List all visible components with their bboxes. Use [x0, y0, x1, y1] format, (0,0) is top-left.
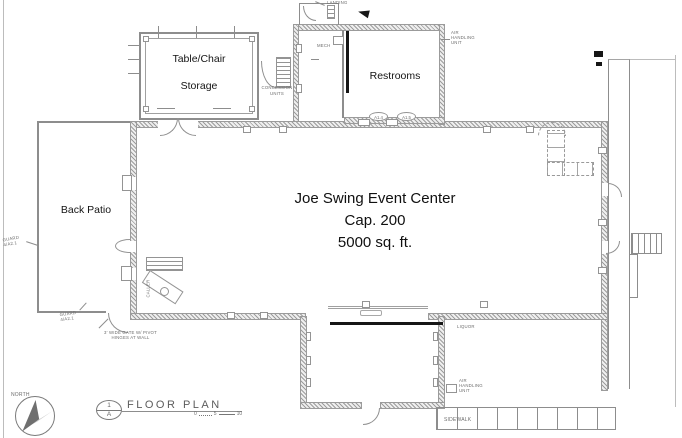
ahu-line3: UNIT	[451, 40, 475, 45]
air-handling-unit-bottom-label: AIR HANDLING UNIT	[459, 378, 483, 393]
storage-label-line1: Table/Chair	[149, 53, 249, 65]
wall-tick	[279, 126, 287, 133]
roof-column-mark	[362, 301, 370, 308]
wall-tick	[526, 126, 534, 133]
restroom-door-sill	[386, 119, 398, 126]
sidewalk-panels: SIDEWALK	[436, 407, 616, 430]
scale-zero: 0	[194, 411, 197, 417]
storage-window-tick	[196, 26, 197, 38]
wall-restroom-north	[293, 24, 445, 31]
sheet-letter: A	[97, 410, 121, 419]
event-center-capacity: Cap. 200	[265, 210, 485, 232]
concession-door-swing	[261, 61, 276, 88]
property-line	[675, 55, 676, 407]
event-center-name: Joe Swing Event Center	[265, 188, 485, 210]
restrooms-label: Restrooms	[350, 70, 440, 82]
roof-column-mark	[480, 301, 488, 308]
wall-tick	[433, 378, 438, 387]
highlighted-wall-horizontal	[330, 322, 443, 325]
gate-note-line2: HINGES AT WALL	[104, 335, 157, 340]
mech-mark	[311, 59, 319, 60]
patio-door-panel-2	[121, 266, 132, 281]
patio-door-panel-1	[122, 175, 132, 191]
storage-window-tick	[128, 73, 141, 74]
wall-entry-south-left	[300, 402, 362, 409]
back-patio-walls	[37, 121, 131, 313]
gate-note: 3' WIDE GATE W/ PIVOT HINGES AT WALL	[104, 330, 157, 340]
ahu-top-leader-line	[441, 39, 450, 40]
guard-line2: 4/A2.1	[60, 315, 77, 322]
wall-hall-south-west	[130, 313, 306, 320]
storage-window-tick	[128, 45, 141, 46]
gate-leader-line	[99, 319, 109, 329]
landing-steps	[327, 5, 335, 19]
wall-tick	[433, 332, 438, 341]
storage-corner-post	[249, 36, 255, 42]
landing-label: LANDING	[327, 0, 348, 5]
wall-tick	[306, 378, 311, 387]
walkway-top-line	[630, 59, 676, 60]
wall-hall-south-east	[428, 313, 608, 320]
wall-hall-west	[130, 121, 137, 319]
restroom-door-sill	[358, 119, 370, 126]
ahu-bottom-unit	[446, 384, 457, 393]
bar-counter-dashed-horizontal	[547, 162, 594, 176]
mech-unit	[333, 36, 344, 45]
exterior-stairs	[631, 233, 662, 254]
storage-corner-post	[249, 106, 255, 112]
wall-highlight-mark	[594, 51, 603, 57]
scale-five: 5	[214, 411, 217, 417]
drawing-title: FLOOR PLAN	[127, 399, 222, 411]
wall-highlight-mark	[596, 62, 602, 66]
wall-tick	[296, 44, 302, 53]
ahu-line3: UNIT	[459, 388, 483, 393]
scale-bar: 0 5 10	[194, 411, 242, 417]
side-walkway	[608, 59, 630, 389]
concession-unit	[276, 57, 291, 88]
highlighted-wall-vertical	[346, 31, 349, 93]
storage-door-swing-right	[178, 118, 196, 136]
bubble-divider	[97, 410, 121, 411]
storage-window-tick	[128, 59, 141, 60]
wall-tick	[433, 356, 438, 365]
concession-label-line2: UNITS	[252, 91, 302, 96]
wall-tick	[227, 312, 235, 319]
sidewalk-label: SIDEWALK	[444, 417, 471, 423]
compass-blade-dark	[20, 400, 50, 433]
storage-window-tick	[234, 26, 235, 38]
wall-entry-east	[438, 316, 445, 408]
storage-inner-wall	[145, 38, 253, 114]
caller-shelf	[146, 257, 183, 271]
north-entry-arrow-icon	[357, 8, 370, 18]
storage-window-tick	[158, 26, 159, 38]
stair-rail	[629, 254, 638, 298]
wall-tick	[483, 126, 491, 133]
caller-label: CALLER	[145, 267, 150, 311]
wall-tick	[598, 219, 607, 226]
wall-tick	[598, 147, 607, 154]
scale-segment-line	[219, 414, 235, 415]
wall-restroom-west	[293, 24, 299, 122]
air-handling-unit-top-label: AIR HANDLING UNIT	[451, 30, 475, 45]
door-tag: A1.5	[397, 112, 416, 121]
storage-corner-post	[143, 106, 149, 112]
event-center-label: Joe Swing Event Center Cap. 200 5000 sq.…	[265, 188, 485, 254]
guard-note-bottom: GUARD 4/A2.1	[59, 310, 77, 323]
storage-floor-mark	[157, 108, 175, 109]
concession-label-line1: CONCESSION	[252, 85, 302, 90]
wall-tick	[306, 332, 311, 341]
caller-chair	[160, 287, 169, 296]
wall-liquor-east	[601, 319, 608, 391]
scan-edge-line	[3, 0, 4, 438]
storage-corner-post	[143, 36, 149, 42]
liquor-label: LIQUOR	[457, 324, 475, 329]
patio-door-opening-2	[130, 241, 136, 252]
storage-floor-mark	[213, 108, 231, 109]
mech-label: MECH	[317, 43, 330, 48]
scale-break-squiggle	[199, 412, 212, 416]
wall-tick	[598, 267, 607, 274]
scale-ten: 10	[237, 411, 243, 417]
drawing-tag-bubble: 1 A	[96, 400, 122, 420]
drawing-number: 1	[97, 401, 121, 410]
wall-tick	[243, 126, 251, 133]
storage-door-swing-left	[160, 118, 178, 136]
guard-note-left: GUARD 4/A2.1	[2, 235, 20, 248]
wall-tick	[306, 356, 311, 365]
detail-tag-box	[360, 310, 382, 316]
wall-tick	[260, 312, 268, 319]
floor-plan-drawing: Table/Chair Storage LANDING MECH Restroo…	[0, 0, 682, 438]
back-patio-label: Back Patio	[51, 204, 121, 216]
event-center-area: 5000 sq. ft.	[265, 232, 485, 254]
storage-label-line2: Storage	[149, 80, 249, 92]
door-tag: A1.4	[369, 112, 388, 121]
north-compass-icon	[15, 396, 55, 436]
canopy-roof-line	[328, 306, 428, 309]
entry-door-swing	[363, 408, 380, 425]
